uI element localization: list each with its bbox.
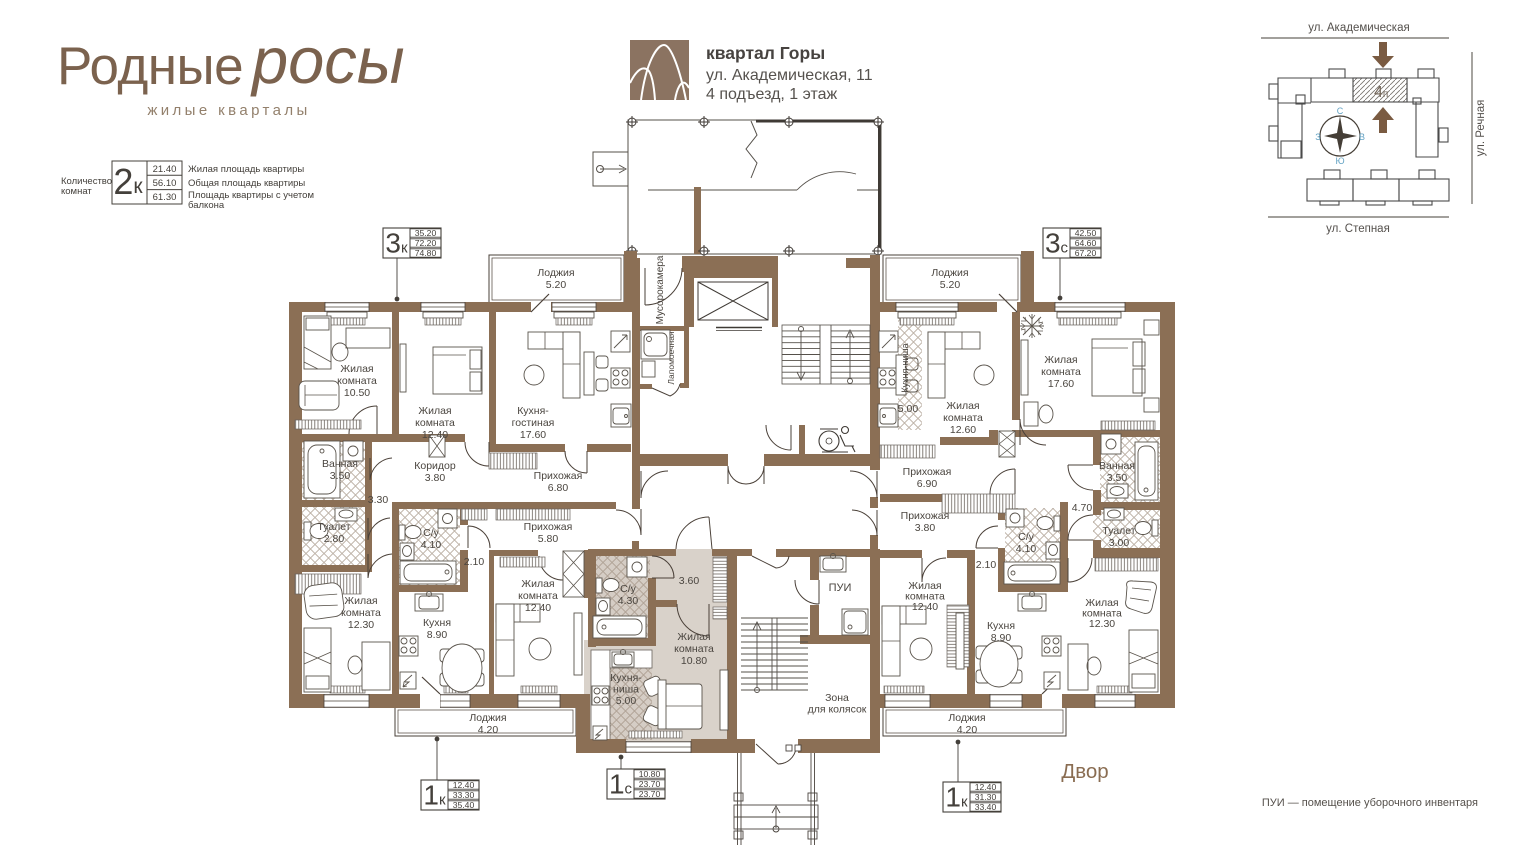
svg-text:Мусорокамера: Мусорокамера bbox=[655, 255, 666, 324]
svg-text:ул. Академическая: ул. Академическая bbox=[1308, 22, 1409, 34]
svg-text:61.30: 61.30 bbox=[153, 192, 177, 203]
svg-text:42.50: 42.50 bbox=[1075, 228, 1097, 238]
svg-text:12.40: 12.40 bbox=[525, 602, 551, 614]
svg-text:Кухня-ниша: Кухня-ниша bbox=[900, 343, 910, 392]
svg-text:комната: комната bbox=[415, 417, 455, 429]
svg-text:5.20: 5.20 bbox=[940, 279, 961, 291]
svg-text:3.50: 3.50 bbox=[1107, 472, 1128, 484]
svg-text:Жилая площадь квартиры: Жилая площадь квартиры bbox=[188, 164, 304, 175]
svg-text:6.80: 6.80 bbox=[548, 482, 569, 494]
svg-text:35.40: 35.40 bbox=[453, 800, 475, 810]
svg-text:3.60: 3.60 bbox=[679, 575, 700, 587]
svg-text:4.20: 4.20 bbox=[478, 724, 499, 736]
svg-text:квартал Горы: квартал Горы bbox=[706, 43, 825, 63]
svg-text:64.60: 64.60 bbox=[1075, 238, 1097, 248]
svg-text:Лоджия: Лоджия bbox=[931, 267, 968, 279]
svg-text:12.40: 12.40 bbox=[975, 782, 997, 792]
svg-text:4.10: 4.10 bbox=[421, 539, 442, 551]
svg-text:Родные: Родные bbox=[57, 37, 243, 96]
svg-text:Лоджия: Лоджия bbox=[948, 712, 985, 724]
svg-text:17.60: 17.60 bbox=[1048, 378, 1074, 390]
svg-text:Лоджия: Лоджия bbox=[469, 712, 506, 724]
svg-text:67.20: 67.20 bbox=[1075, 248, 1097, 258]
svg-text:С/у: С/у bbox=[620, 583, 637, 595]
svg-text:17.60: 17.60 bbox=[520, 429, 546, 441]
svg-text:5.20: 5.20 bbox=[546, 279, 567, 291]
svg-text:72.20: 72.20 bbox=[415, 238, 437, 248]
svg-text:35.20: 35.20 bbox=[415, 228, 437, 238]
svg-text:33.30: 33.30 bbox=[453, 790, 475, 800]
svg-text:для колясок: для колясок bbox=[808, 704, 867, 716]
svg-text:Прихожая: Прихожая bbox=[903, 466, 952, 478]
svg-text:56.10: 56.10 bbox=[153, 178, 177, 189]
svg-text:Коридор: Коридор bbox=[414, 460, 456, 472]
svg-text:3.80: 3.80 bbox=[915, 522, 936, 534]
svg-text:31.30: 31.30 bbox=[975, 792, 997, 802]
svg-text:10.80: 10.80 bbox=[681, 655, 707, 667]
svg-text:Кухня: Кухня bbox=[987, 620, 1015, 632]
svg-text:Жилая: Жилая bbox=[418, 405, 451, 417]
svg-text:Жилая: Жилая bbox=[521, 578, 554, 590]
svg-text:4 подъезд, 1 этаж: 4 подъезд, 1 этаж bbox=[706, 86, 838, 103]
svg-text:комната: комната bbox=[1041, 366, 1081, 378]
svg-text:Ванная: Ванная bbox=[1099, 460, 1135, 472]
svg-text:жилые кварталы: жилые кварталы bbox=[147, 102, 310, 119]
svg-text:4.10: 4.10 bbox=[1016, 543, 1037, 555]
svg-text:росы: росы bbox=[250, 24, 405, 97]
svg-text:Кухня-: Кухня- bbox=[610, 672, 642, 684]
svg-text:ул. Речная: ул. Речная bbox=[1475, 100, 1487, 157]
svg-text:комната: комната bbox=[674, 643, 714, 655]
svg-text:ул. Степная: ул. Степная bbox=[1326, 223, 1390, 235]
svg-text:Жилая: Жилая bbox=[344, 595, 377, 607]
svg-text:Лоджия: Лоджия bbox=[537, 267, 574, 279]
svg-text:12.40: 12.40 bbox=[453, 780, 475, 790]
svg-text:Жилая: Жилая bbox=[677, 631, 710, 643]
svg-text:Прихожая: Прихожая bbox=[901, 510, 950, 522]
svg-text:комната: комната bbox=[341, 607, 381, 619]
svg-text:33.40: 33.40 bbox=[975, 802, 997, 812]
svg-text:Ванная: Ванная bbox=[322, 458, 358, 470]
svg-text:С: С bbox=[1337, 106, 1344, 116]
svg-text:ПУИ — помещение уборочного инв: ПУИ — помещение уборочного инвентаря bbox=[1262, 797, 1478, 809]
svg-text:Жилая: Жилая bbox=[1044, 354, 1077, 366]
svg-text:Лапомоечная: Лапомоечная bbox=[666, 331, 676, 385]
svg-text:3.50: 3.50 bbox=[330, 470, 351, 482]
svg-text:Кухня: Кухня bbox=[423, 617, 451, 629]
svg-text:4.20: 4.20 bbox=[957, 724, 978, 736]
svg-text:Зона: Зона bbox=[825, 692, 849, 704]
svg-text:23.70: 23.70 bbox=[639, 789, 661, 799]
svg-text:комната: комната bbox=[943, 412, 983, 424]
svg-text:10.50: 10.50 bbox=[344, 387, 370, 399]
svg-text:8.90: 8.90 bbox=[427, 629, 448, 641]
svg-text:21.40: 21.40 bbox=[153, 164, 177, 175]
svg-text:комната: комната bbox=[518, 590, 558, 602]
svg-text:10.80: 10.80 bbox=[639, 769, 661, 779]
svg-text:8.90: 8.90 bbox=[991, 632, 1012, 644]
svg-text:Кухня-: Кухня- bbox=[517, 405, 549, 417]
svg-text:5.00: 5.00 bbox=[898, 403, 919, 415]
svg-text:3.80: 3.80 bbox=[425, 472, 446, 484]
svg-text:6.90: 6.90 bbox=[917, 478, 938, 490]
svg-text:3.30: 3.30 bbox=[368, 494, 389, 506]
svg-text:2.10: 2.10 bbox=[976, 559, 997, 571]
svg-text:Ю: Ю bbox=[1335, 156, 1344, 166]
svg-text:В: В bbox=[1359, 132, 1365, 142]
svg-text:4.30: 4.30 bbox=[618, 595, 639, 607]
svg-text:ниша: ниша bbox=[613, 684, 639, 696]
svg-text:Жилая: Жилая bbox=[340, 363, 373, 375]
svg-text:5.00: 5.00 bbox=[616, 695, 637, 707]
svg-text:12.40: 12.40 bbox=[912, 601, 938, 613]
svg-text:12.30: 12.30 bbox=[348, 619, 374, 631]
svg-text:Двор: Двор bbox=[1061, 760, 1108, 783]
svg-text:Прихожая: Прихожая bbox=[534, 470, 583, 482]
svg-text:балкона: балкона bbox=[188, 200, 225, 211]
svg-text:Жилая: Жилая bbox=[946, 400, 979, 412]
svg-text:Туалет: Туалет bbox=[1102, 525, 1135, 537]
svg-text:гостиная: гостиная bbox=[512, 417, 555, 429]
svg-text:комнат: комнат bbox=[61, 186, 92, 197]
svg-text:3.00: 3.00 bbox=[1109, 537, 1130, 549]
svg-text:ул. Академическая, 11: ул. Академическая, 11 bbox=[706, 67, 873, 84]
svg-text:74.80: 74.80 bbox=[415, 248, 437, 258]
svg-text:комната: комната bbox=[337, 375, 377, 387]
svg-text:ПУИ: ПУИ bbox=[829, 582, 852, 594]
svg-text:Прихожая: Прихожая bbox=[524, 521, 573, 533]
svg-text:5.80: 5.80 bbox=[538, 533, 559, 545]
svg-text:Общая площадь квартиры: Общая площадь квартиры bbox=[188, 178, 305, 189]
svg-text:2.80: 2.80 bbox=[324, 533, 345, 545]
svg-text:23.70: 23.70 bbox=[639, 779, 661, 789]
svg-text:12.40: 12.40 bbox=[422, 429, 448, 441]
svg-text:12.30: 12.30 bbox=[1089, 618, 1115, 630]
svg-text:С/у: С/у bbox=[1018, 531, 1035, 543]
svg-text:2.10: 2.10 bbox=[464, 556, 485, 568]
svg-text:Туалет: Туалет bbox=[317, 521, 350, 533]
svg-text:12.60: 12.60 bbox=[950, 424, 976, 436]
svg-text:4.70: 4.70 bbox=[1072, 502, 1093, 514]
svg-text:З: З bbox=[1315, 132, 1320, 142]
svg-text:С/у: С/у bbox=[423, 527, 440, 539]
